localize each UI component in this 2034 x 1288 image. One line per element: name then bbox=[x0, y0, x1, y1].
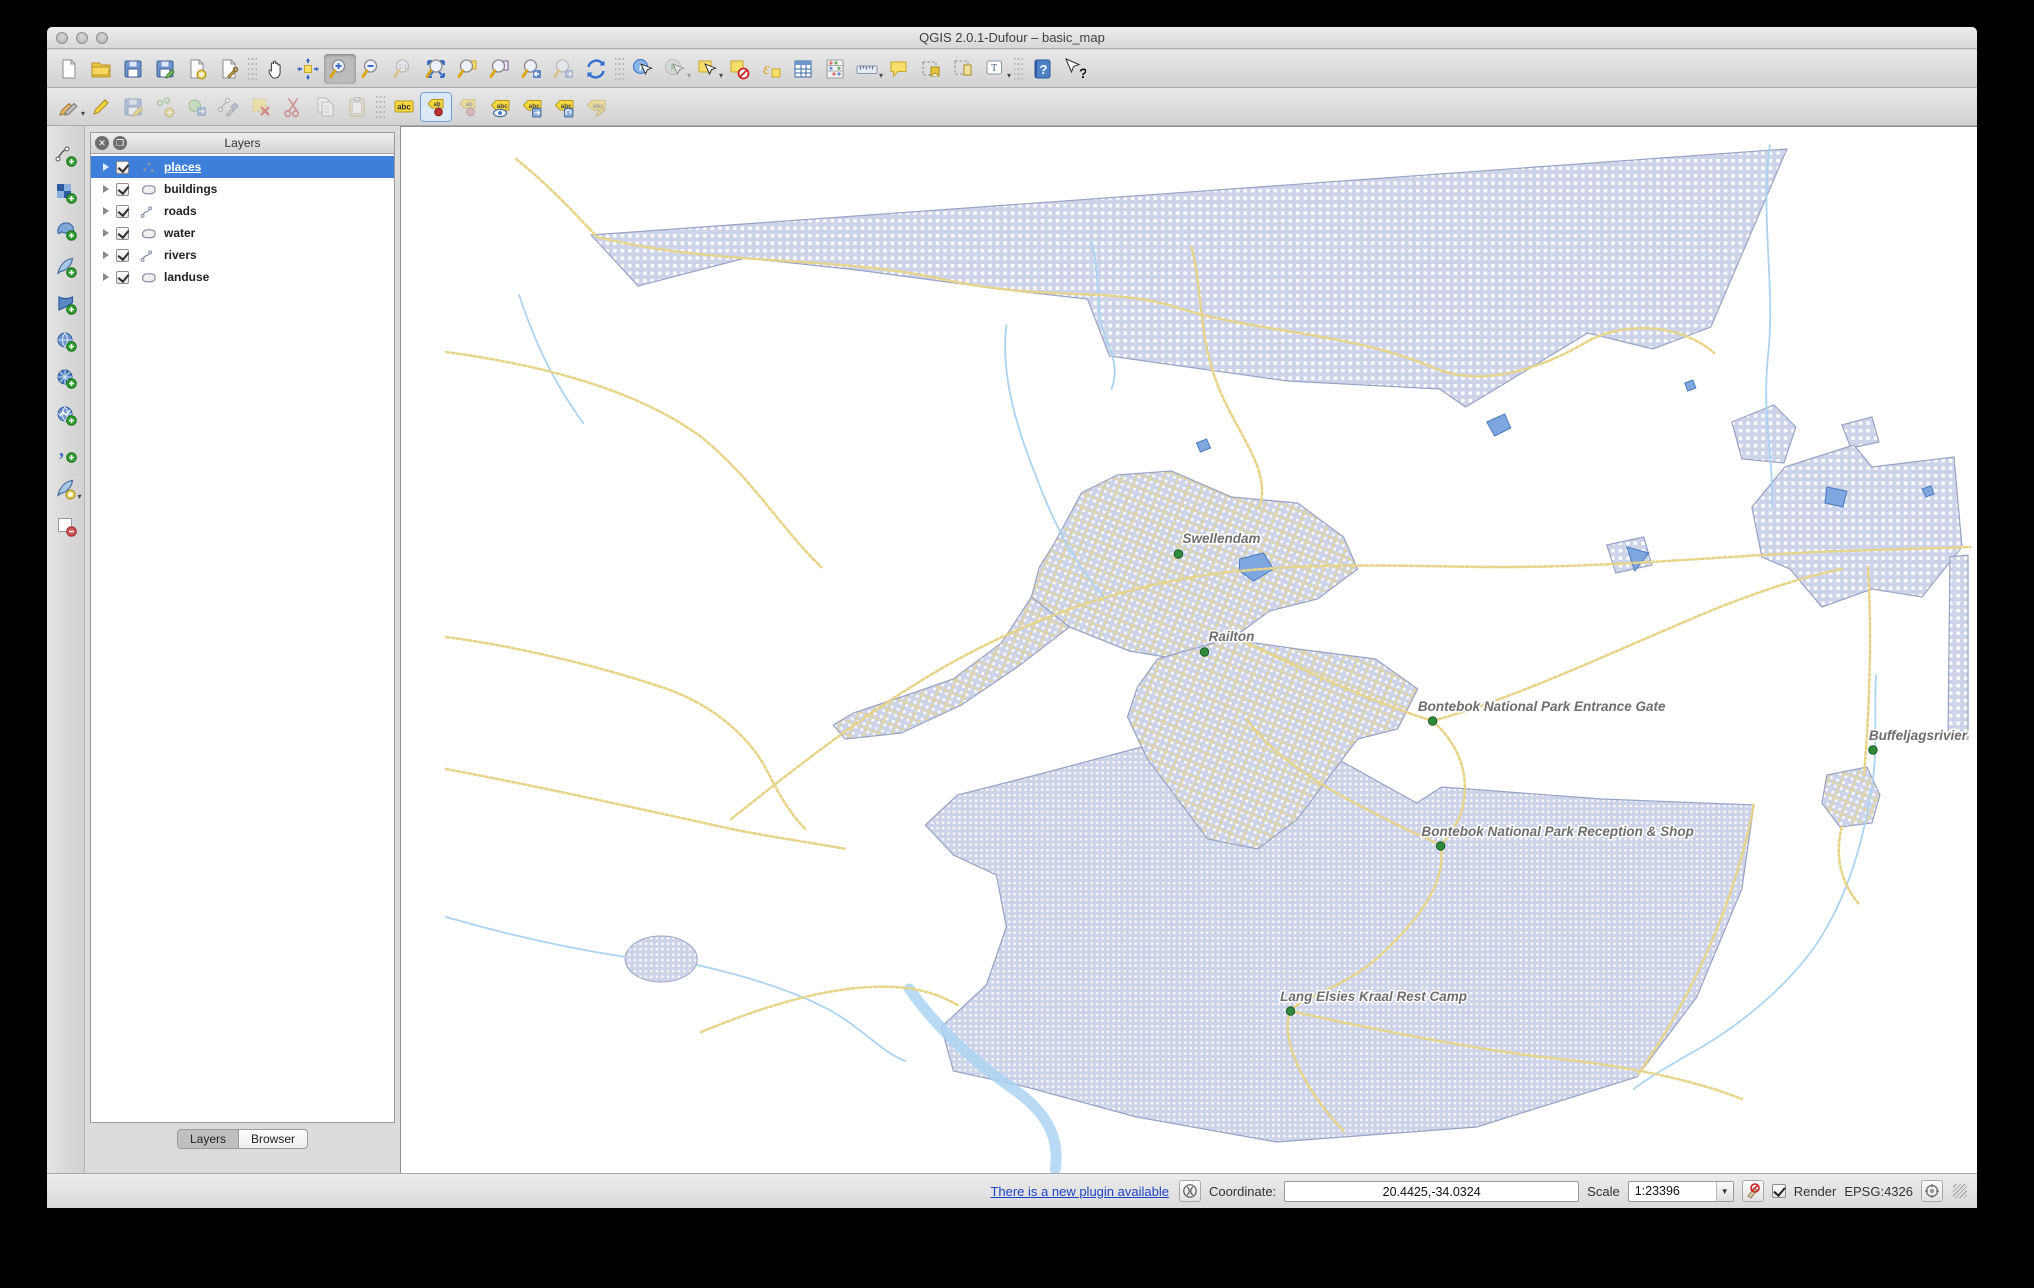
delete-selected-button bbox=[245, 92, 277, 122]
add-feature-button bbox=[149, 92, 181, 122]
show-bookmarks-icon bbox=[951, 57, 975, 81]
expand-arrow-icon[interactable] bbox=[103, 273, 109, 281]
open-project-button[interactable] bbox=[85, 54, 117, 84]
cut-features-icon bbox=[281, 95, 305, 119]
move-label-icon: abc bbox=[520, 95, 544, 119]
map-tips-button[interactable] bbox=[883, 54, 915, 84]
add-wms-layer-button[interactable] bbox=[50, 325, 82, 357]
digitizing-label-toolbar: ▾abcabababcabcabcabc bbox=[47, 88, 1977, 126]
pond-polygon bbox=[625, 936, 697, 982]
add-wcs-layer-icon bbox=[54, 366, 78, 390]
paste-features-button bbox=[341, 92, 373, 122]
zoom-in-icon bbox=[328, 57, 352, 81]
polygon-layer-icon bbox=[138, 226, 158, 240]
node-tool-button bbox=[213, 92, 245, 122]
zoom-last-icon bbox=[520, 57, 544, 81]
layer-row-roads[interactable]: roads bbox=[91, 200, 394, 222]
zoom-out-button[interactable] bbox=[356, 54, 388, 84]
zoom-to-layer-button[interactable] bbox=[484, 54, 516, 84]
identify-features-button[interactable]: i bbox=[627, 54, 659, 84]
add-wfs-layer-button[interactable] bbox=[50, 399, 82, 431]
save-project-as-icon bbox=[153, 57, 177, 81]
place-label: Bontebok National Park Entrance Gate bbox=[1418, 699, 1666, 714]
zoom-full-icon bbox=[424, 57, 448, 81]
select-by-expression-button[interactable]: ε bbox=[755, 54, 787, 84]
layer-visibility-checkbox[interactable] bbox=[116, 227, 129, 240]
zoom-full-button[interactable] bbox=[420, 54, 452, 84]
new-bookmark-button[interactable] bbox=[915, 54, 947, 84]
layer-list: placesbuildingsroadswaterriverslanduse bbox=[91, 154, 394, 1122]
place-label: Buffeljagsrivier bbox=[1869, 728, 1968, 743]
layer-row-landuse[interactable]: landuse bbox=[91, 266, 394, 288]
layer-name: places bbox=[164, 160, 201, 174]
text-annotation-button[interactable]: T▾ bbox=[979, 54, 1011, 84]
title-bar[interactable]: QGIS 2.0.1-Dufour – basic_map bbox=[47, 27, 1977, 49]
resize-grip[interactable] bbox=[1953, 1184, 1967, 1198]
add-raster-layer-icon bbox=[54, 181, 78, 205]
status-bar: There is a new plugin available Coordina… bbox=[47, 1173, 1977, 1208]
layer-visibility-checkbox[interactable] bbox=[116, 271, 129, 284]
remove-layer-icon bbox=[54, 514, 78, 538]
toolbar-separator bbox=[1014, 56, 1023, 82]
zoom-native-icon: 1:1 bbox=[392, 57, 416, 81]
select-features-button[interactable]: ▾ bbox=[691, 54, 723, 84]
toggle-editing-icon bbox=[89, 95, 113, 119]
park-polygons bbox=[925, 719, 1754, 1142]
add-raster-layer-button[interactable] bbox=[50, 177, 82, 209]
place-point-0 bbox=[1174, 550, 1182, 558]
copy-features-button bbox=[309, 92, 341, 122]
expand-arrow-icon[interactable] bbox=[103, 251, 109, 259]
svg-text:abc: abc bbox=[397, 102, 411, 111]
add-wms-layer-icon bbox=[54, 329, 78, 353]
add-spatialite-layer-icon bbox=[54, 255, 78, 279]
layers-panel-header: ✕ ❐ Layers bbox=[91, 133, 394, 154]
new-shapefile-layer-dropdown-icon[interactable]: ▾ bbox=[77, 492, 81, 501]
composer-manager-button[interactable] bbox=[213, 54, 245, 84]
save-project-as-button[interactable] bbox=[149, 54, 181, 84]
zoom-last-button[interactable] bbox=[516, 54, 548, 84]
render-label: Render bbox=[1794, 1184, 1837, 1199]
whats-this-button[interactable]: ? bbox=[1058, 54, 1090, 84]
crs-status-icon[interactable] bbox=[1921, 1180, 1943, 1202]
cut-features-button bbox=[277, 92, 309, 122]
add-postgis-layer-icon bbox=[54, 218, 78, 242]
show-bookmarks-button[interactable] bbox=[947, 54, 979, 84]
select-by-expression-icon: ε bbox=[759, 57, 783, 81]
move-feature-icon bbox=[185, 95, 209, 119]
toggle-editing-button[interactable] bbox=[85, 92, 117, 122]
tab-browser[interactable]: Browser bbox=[239, 1129, 308, 1149]
scale-value: 1:23396 bbox=[1629, 1184, 1716, 1198]
layer-visibility-checkbox[interactable] bbox=[116, 183, 129, 196]
refresh-map-icon bbox=[584, 57, 608, 81]
select-features-icon bbox=[695, 57, 719, 81]
place-label: Lang Elsies Kraal Rest Camp bbox=[1280, 989, 1467, 1004]
refresh-map-button[interactable] bbox=[580, 54, 612, 84]
zoom-in-button[interactable] bbox=[324, 54, 356, 84]
add-wfs-layer-icon bbox=[54, 403, 78, 427]
point-layer-icon bbox=[138, 160, 158, 174]
place-point-1 bbox=[1200, 648, 1208, 656]
scale-dropdown-icon[interactable]: ▼ bbox=[1716, 1182, 1733, 1201]
line-layer-icon bbox=[138, 248, 158, 262]
layer-row-rivers[interactable]: rivers bbox=[91, 244, 394, 266]
new-project-button[interactable] bbox=[53, 54, 85, 84]
change-label-icon: abc bbox=[584, 95, 608, 119]
zoom-out-icon bbox=[360, 57, 384, 81]
place-point-2 bbox=[1428, 717, 1436, 725]
place-point-3 bbox=[1869, 746, 1877, 754]
zoom-next-icon bbox=[552, 57, 576, 81]
add-postgis-layer-button[interactable] bbox=[50, 214, 82, 246]
coordinate-label: Coordinate: bbox=[1209, 1184, 1276, 1199]
place-point-5 bbox=[1286, 1007, 1294, 1015]
layer-row-places[interactable]: places bbox=[91, 156, 394, 178]
expand-arrow-icon[interactable] bbox=[103, 207, 109, 215]
new-bookmark-icon bbox=[919, 57, 943, 81]
run-feature-action-icon bbox=[663, 57, 687, 81]
add-spatialite-layer-button[interactable] bbox=[50, 251, 82, 283]
show-hide-labels-button[interactable]: abc bbox=[484, 92, 516, 122]
text-annotation-dropdown-icon[interactable]: ▾ bbox=[1007, 71, 1011, 80]
help-contents-button[interactable]: ? bbox=[1026, 54, 1058, 84]
current-edits-icon bbox=[57, 95, 81, 119]
zoom-to-selection-icon bbox=[456, 57, 480, 81]
layers-panel-title: Layers bbox=[224, 136, 260, 150]
main-toolbar: 1:1i▾▾ε▾T▾?? bbox=[47, 50, 1977, 88]
pin-labels-button[interactable]: ab bbox=[420, 92, 452, 122]
layers-dock: ✕ ❐ Layers placesbuildingsroadswaterrive… bbox=[85, 126, 400, 1173]
toolbar-separator bbox=[376, 94, 385, 120]
identify-features-icon: i bbox=[631, 57, 655, 81]
move-label-button[interactable]: abc bbox=[516, 92, 548, 122]
svg-text:ε: ε bbox=[763, 59, 770, 78]
toolbar-separator bbox=[248, 56, 257, 82]
layer-labeling-options-button[interactable]: abc bbox=[388, 92, 420, 122]
add-vector-layer-icon bbox=[54, 144, 78, 168]
panel-tabs: LayersBrowser bbox=[85, 1129, 400, 1149]
layer-name: landuse bbox=[164, 270, 209, 284]
place-label: Bontebok National Park Reception & Shop bbox=[1422, 824, 1694, 839]
measure-icon bbox=[855, 57, 879, 81]
help-contents-icon: ? bbox=[1030, 57, 1054, 81]
layer-name: rivers bbox=[164, 248, 197, 262]
add-delimited-text-layer-icon: , bbox=[54, 440, 78, 464]
layer-row-buildings[interactable]: buildings bbox=[91, 178, 394, 200]
coordinate-input[interactable]: 20.4425,-34.0324 bbox=[1284, 1181, 1579, 1202]
svg-text:T: T bbox=[991, 63, 997, 74]
show-hide-labels-icon: abc bbox=[488, 95, 512, 119]
toolbar-separator bbox=[615, 56, 624, 82]
tab-layers[interactable]: Layers bbox=[177, 1129, 239, 1149]
place-label: Railton bbox=[1209, 629, 1255, 644]
layer-row-water[interactable]: water bbox=[91, 222, 394, 244]
line-layer-icon bbox=[138, 204, 158, 218]
manage-layers-toolbar: ,▾ bbox=[47, 126, 85, 1173]
save-project-button[interactable] bbox=[117, 54, 149, 84]
highlight-pinned-labels-button: ab bbox=[452, 92, 484, 122]
panel-float-icon[interactable]: ❐ bbox=[113, 136, 127, 150]
layer-labeling-options-icon: abc bbox=[392, 95, 416, 119]
crs-status: EPSG:4326 bbox=[1844, 1184, 1913, 1199]
pan-to-selection-icon bbox=[296, 57, 320, 81]
layer-name: water bbox=[164, 226, 195, 240]
pan-map-icon bbox=[264, 57, 288, 81]
layer-visibility-checkbox[interactable] bbox=[116, 249, 129, 262]
svg-text:ab: ab bbox=[433, 102, 440, 108]
map-svg: SwellendamRailtonBontebok National Park … bbox=[401, 127, 1977, 1173]
save-layer-edits-button bbox=[117, 92, 149, 122]
composer-manager-icon bbox=[217, 57, 241, 81]
plugin-icon[interactable] bbox=[1179, 1180, 1201, 1202]
zoom-to-selection-button[interactable] bbox=[452, 54, 484, 84]
plugin-available-link[interactable]: There is a new plugin available bbox=[990, 1184, 1169, 1199]
save-layer-edits-icon bbox=[121, 95, 145, 119]
expand-arrow-icon[interactable] bbox=[103, 185, 109, 193]
place-label: Swellendam bbox=[1182, 531, 1260, 546]
scale-combo[interactable]: 1:23396 ▼ bbox=[1628, 1181, 1734, 1202]
pan-map-button[interactable] bbox=[260, 54, 292, 84]
pin-labels-icon: ab bbox=[424, 95, 448, 119]
place-point-4 bbox=[1436, 842, 1444, 850]
field-calculator-button[interactable] bbox=[819, 54, 851, 84]
highlight-pinned-labels-icon: ab bbox=[456, 95, 480, 119]
zoom-next-button bbox=[548, 54, 580, 84]
pan-to-selection-button[interactable] bbox=[292, 54, 324, 84]
svg-text:?: ? bbox=[1079, 65, 1086, 81]
deselect-features-button[interactable] bbox=[723, 54, 755, 84]
app-window: QGIS 2.0.1-Dufour – basic_map 1:1i▾▾ε▾T▾… bbox=[47, 27, 1977, 1208]
expand-arrow-icon[interactable] bbox=[103, 229, 109, 237]
svg-text:1:1: 1:1 bbox=[398, 64, 407, 70]
delete-selected-icon bbox=[249, 95, 273, 119]
add-mssql-layer-icon bbox=[54, 292, 78, 316]
polygon-layer-icon bbox=[138, 270, 158, 284]
polygon-layer-icon bbox=[138, 182, 158, 196]
zoom-native-button: 1:1 bbox=[388, 54, 420, 84]
svg-text:,: , bbox=[59, 440, 64, 461]
current-edits-button[interactable]: ▾ bbox=[53, 92, 85, 122]
whats-this-icon: ? bbox=[1062, 57, 1086, 81]
window-title: QGIS 2.0.1-Dufour – basic_map bbox=[47, 30, 1977, 45]
zoom-to-layer-icon bbox=[488, 57, 512, 81]
add-wcs-layer-button[interactable] bbox=[50, 362, 82, 394]
measure-button[interactable]: ▾ bbox=[851, 54, 883, 84]
add-delimited-text-layer-button[interactable]: , bbox=[50, 436, 82, 468]
render-checkbox[interactable] bbox=[1772, 1184, 1786, 1198]
run-feature-action-button: ▾ bbox=[659, 54, 691, 84]
new-print-composer-icon bbox=[185, 57, 209, 81]
new-shapefile-layer-button[interactable]: ▾ bbox=[50, 473, 82, 505]
layer-name: buildings bbox=[164, 182, 217, 196]
paste-features-icon bbox=[345, 95, 369, 119]
move-feature-button bbox=[181, 92, 213, 122]
add-mssql-layer-button[interactable] bbox=[50, 288, 82, 320]
layer-visibility-checkbox[interactable] bbox=[116, 161, 129, 174]
expand-arrow-icon[interactable] bbox=[103, 163, 109, 171]
new-project-icon bbox=[57, 57, 81, 81]
text-annotation-icon: T bbox=[983, 57, 1007, 81]
open-attribute-table-button[interactable] bbox=[787, 54, 819, 84]
deselect-features-icon bbox=[727, 57, 751, 81]
panel-close-icon[interactable]: ✕ bbox=[95, 136, 109, 150]
new-shapefile-layer-icon bbox=[54, 477, 78, 501]
layers-panel: ✕ ❐ Layers placesbuildingsroadswaterrive… bbox=[90, 132, 395, 1123]
add-feature-icon bbox=[153, 95, 177, 119]
svg-text:ab: ab bbox=[465, 102, 472, 108]
scale-label: Scale bbox=[1587, 1184, 1620, 1199]
open-project-icon bbox=[89, 57, 113, 81]
map-tips-icon bbox=[887, 57, 911, 81]
stop-render-icon[interactable] bbox=[1742, 1180, 1764, 1202]
remove-layer-button[interactable] bbox=[50, 510, 82, 542]
new-print-composer-button[interactable] bbox=[181, 54, 213, 84]
map-canvas[interactable]: SwellendamRailtonBontebok National Park … bbox=[400, 126, 1977, 1173]
rotate-label-button[interactable]: abc bbox=[548, 92, 580, 122]
node-tool-icon bbox=[217, 95, 241, 119]
add-vector-layer-button[interactable] bbox=[50, 140, 82, 172]
change-label-button: abc bbox=[580, 92, 612, 122]
rotate-label-icon: abc bbox=[552, 95, 576, 119]
open-attribute-table-icon bbox=[791, 57, 815, 81]
save-project-icon bbox=[121, 57, 145, 81]
layer-name: roads bbox=[164, 204, 197, 218]
field-calculator-icon bbox=[823, 57, 847, 81]
svg-text:?: ? bbox=[1040, 62, 1048, 77]
copy-features-icon bbox=[313, 95, 337, 119]
layer-visibility-checkbox[interactable] bbox=[116, 205, 129, 218]
